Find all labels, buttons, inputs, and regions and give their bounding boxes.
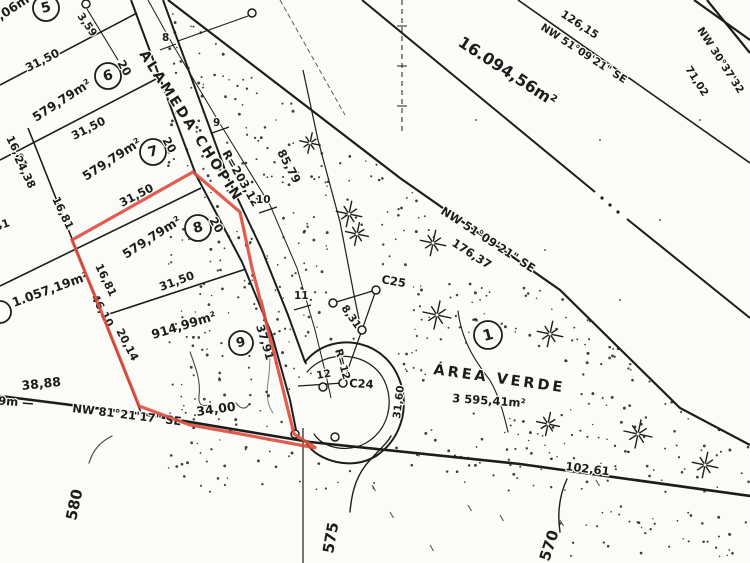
stipple-dot <box>596 525 598 527</box>
stipple-dot <box>620 421 623 424</box>
stipple-dot <box>209 180 211 182</box>
stipple-dot <box>602 397 604 399</box>
stipple-dot <box>186 461 189 464</box>
stipple-dot <box>269 450 271 452</box>
stipple-dot <box>508 459 510 461</box>
stipple-dot <box>476 446 478 448</box>
stipple-dot <box>413 286 414 287</box>
stipple-dot <box>246 88 248 90</box>
stipple-dot <box>680 411 682 413</box>
stipple-dot <box>235 423 237 425</box>
stipple-dot <box>455 315 457 317</box>
stipple-dot <box>326 231 329 234</box>
map-label-point-c24: C24 <box>349 376 374 391</box>
stipple-dot <box>664 491 666 493</box>
stipple-dot <box>246 134 248 136</box>
stipple-dot <box>209 330 211 332</box>
stipple-dot <box>628 404 631 407</box>
stipple-dot <box>365 160 366 161</box>
stipple-dot <box>238 113 241 116</box>
stipple-dot <box>717 516 720 519</box>
stipple-dot <box>549 452 551 454</box>
stipple-dot <box>716 486 718 488</box>
stipple-dot <box>654 523 656 525</box>
stipple-dot <box>216 205 219 208</box>
stipple-dot <box>564 443 565 444</box>
stipple-dot <box>170 123 173 126</box>
stipple-dot <box>561 298 564 301</box>
stipple-dot <box>275 119 277 121</box>
stipple-dot <box>204 197 206 199</box>
stipple-dot <box>641 527 643 529</box>
stipple-dot <box>587 352 590 355</box>
stipple-dot <box>176 47 178 49</box>
stipple-dot <box>219 439 220 440</box>
stipple-dot <box>168 467 170 469</box>
stipple-dot <box>389 255 391 257</box>
stipple-dot <box>510 424 512 426</box>
stipple-dot <box>525 294 527 296</box>
stipple-dot <box>661 479 663 481</box>
stipple-dot <box>192 344 195 347</box>
stipple-dot <box>316 488 318 490</box>
map-label-chainage-10: 10 <box>256 194 271 206</box>
stipple-dot <box>387 211 389 213</box>
stipple-dot <box>703 444 706 447</box>
stipple-dot <box>716 454 718 456</box>
stipple-dot <box>325 181 327 183</box>
stipple-dot <box>424 373 426 375</box>
stipple-dot <box>275 289 277 291</box>
stipple-dot <box>284 328 286 330</box>
stipple-dot <box>522 420 525 423</box>
stipple-dot <box>224 247 226 249</box>
stipple-dot <box>202 168 204 170</box>
stipple-dot <box>566 360 568 362</box>
stipple-dot <box>173 62 175 64</box>
stipple-dot <box>292 142 294 144</box>
stipple-dot <box>611 396 614 399</box>
stipple-dot <box>687 418 689 420</box>
stipple-dot <box>450 297 452 299</box>
stipple-dot <box>207 174 210 177</box>
stipple-dot <box>456 294 458 296</box>
stipple-dot <box>167 164 170 167</box>
stipple-dot <box>227 477 229 479</box>
stipple-dot <box>355 216 357 218</box>
stipple-dot <box>479 462 481 464</box>
stipple-dot <box>688 540 690 542</box>
stipple-dot <box>266 176 268 178</box>
stipple-dot <box>515 328 517 330</box>
scan-speck <box>619 299 621 301</box>
stipple-dot <box>664 403 666 405</box>
stipple-dot <box>172 384 174 386</box>
stipple-dot <box>325 291 327 293</box>
stipple-dot <box>257 459 260 462</box>
stipple-dot <box>353 338 355 340</box>
stipple-dot <box>536 298 538 300</box>
stipple-dot <box>400 207 403 210</box>
stipple-dot <box>446 470 448 472</box>
stipple-dot <box>228 312 230 314</box>
survey-line-gap-dot <box>608 203 611 206</box>
stipple-dot <box>638 521 641 524</box>
stipple-dot <box>370 175 372 177</box>
stipple-dot <box>603 541 605 543</box>
stipple-dot <box>219 259 221 261</box>
stipple-dot <box>276 318 279 321</box>
stipple-dot <box>243 286 246 289</box>
stipple-dot <box>406 370 408 372</box>
stipple-dot <box>681 471 684 474</box>
stipple-dot <box>186 336 188 338</box>
stipple-dot <box>310 299 312 301</box>
stipple-dot <box>551 458 553 460</box>
stipple-dot <box>288 455 290 457</box>
stipple-dot <box>289 328 291 330</box>
stipple-dot <box>630 369 632 371</box>
stipple-dot <box>420 289 423 292</box>
stipple-dot <box>248 355 250 357</box>
stipple-dot <box>715 547 717 549</box>
survey-point <box>248 9 256 17</box>
stipple-dot <box>678 456 680 458</box>
stipple-dot <box>560 414 562 416</box>
stipple-dot <box>221 288 224 291</box>
stipple-dot <box>528 334 531 337</box>
stipple-dot <box>197 82 200 85</box>
stipple-dot <box>529 431 532 434</box>
stipple-dot <box>479 299 481 301</box>
stipple-dot <box>523 287 526 290</box>
stipple-dot <box>313 216 315 218</box>
stipple-dot <box>512 473 515 476</box>
stipple-dot <box>420 285 421 286</box>
stipple-dot <box>540 468 542 470</box>
stipple-dot <box>284 257 286 259</box>
stipple-dot <box>417 293 420 296</box>
survey-map-page: 56789159,06m²31,50579,79m²31,50579,79m²3… <box>0 0 750 563</box>
stipple-dot <box>326 245 328 247</box>
stipple-dot <box>598 437 600 439</box>
stipple-dot <box>398 353 400 355</box>
stipple-dot <box>440 338 442 340</box>
stipple-dot <box>217 241 220 244</box>
stipple-dot <box>581 488 583 490</box>
stipple-dot <box>571 339 573 341</box>
stipple-dot <box>187 165 189 167</box>
stipple-dot <box>298 242 300 244</box>
stipple-dot <box>576 338 578 340</box>
stipple-dot <box>538 345 541 348</box>
stipple-dot <box>185 412 187 414</box>
stipple-dot <box>316 265 318 267</box>
stipple-dot <box>469 283 472 286</box>
map-label-dim-89m-partial: 89m — <box>0 393 34 410</box>
stipple-dot <box>411 352 413 354</box>
stipple-dot <box>624 450 627 453</box>
stipple-dot <box>629 363 631 365</box>
scan-speck <box>699 119 701 121</box>
stipple-dot <box>203 84 204 85</box>
stipple-dot <box>218 378 221 381</box>
stipple-dot <box>615 468 617 470</box>
stipple-dot <box>509 418 510 419</box>
stipple-dot <box>306 226 308 228</box>
stipple-dot <box>551 308 553 310</box>
stipple-dot <box>411 464 414 467</box>
stipple-dot <box>281 351 284 354</box>
stipple-dot <box>481 287 483 289</box>
stipple-dot <box>591 392 594 395</box>
stipple-dot <box>648 475 651 478</box>
stipple-dot <box>255 307 258 310</box>
stipple-dot <box>200 285 203 288</box>
stipple-dot <box>193 374 195 376</box>
survey-point <box>372 286 380 294</box>
stipple-dot <box>718 535 720 537</box>
stipple-dot <box>473 412 475 414</box>
stipple-dot <box>228 79 230 81</box>
stipple-dot <box>314 291 316 293</box>
stipple-dot <box>203 398 206 401</box>
stipple-dot <box>321 270 324 273</box>
stipple-dot <box>570 409 571 410</box>
stipple-dot <box>747 446 750 449</box>
stipple-dot <box>253 303 255 305</box>
stipple-dot <box>170 454 173 457</box>
stipple-dot <box>223 465 226 468</box>
stipple-dot <box>209 248 212 251</box>
stipple-dot <box>668 546 670 548</box>
stipple-dot <box>612 348 614 350</box>
stipple-dot <box>588 338 590 340</box>
map-label-chainage-8: 8 <box>162 32 169 44</box>
stipple-dot <box>181 384 183 386</box>
scan-speck <box>659 219 661 221</box>
scan-speck <box>599 139 601 141</box>
map-label-chainage-12: 12 <box>315 368 331 382</box>
stipple-dot <box>382 243 384 245</box>
stipple-dot <box>611 355 614 358</box>
stipple-dot <box>318 176 320 178</box>
stipple-dot <box>202 86 204 88</box>
stipple-dot <box>168 47 171 50</box>
stipple-dot <box>684 468 686 470</box>
stipple-dot <box>489 291 491 293</box>
stipple-dot <box>416 335 418 337</box>
stipple-dot <box>515 331 517 333</box>
stipple-dot <box>252 279 254 281</box>
survey-point <box>358 326 366 334</box>
stipple-dot <box>517 434 519 436</box>
stipple-dot <box>381 224 383 226</box>
stipple-dot <box>375 164 377 166</box>
stipple-dot <box>608 357 611 360</box>
stipple-dot <box>741 472 743 474</box>
stipple-dot <box>169 341 171 343</box>
stipple-dot <box>381 177 384 180</box>
stipple-dot <box>168 263 170 265</box>
stipple-dot <box>288 143 291 146</box>
stipple-dot <box>256 92 258 94</box>
stipple-dot <box>290 103 292 105</box>
stipple-dot <box>614 356 616 358</box>
scan-speck <box>544 249 546 251</box>
stipple-dot <box>303 314 304 315</box>
stipple-dot <box>198 52 200 54</box>
stipple-dot <box>572 542 574 544</box>
stipple-dot <box>579 430 581 432</box>
stipple-dot <box>267 255 269 257</box>
stipple-dot <box>263 173 265 175</box>
stipple-dot <box>404 263 407 266</box>
stipple-dot <box>652 518 653 519</box>
stipple-dot <box>215 43 217 45</box>
stipple-dot <box>629 521 631 523</box>
stipple-dot <box>291 452 294 455</box>
stipple-dot <box>298 376 300 378</box>
stipple-dot <box>281 103 283 105</box>
stipple-dot <box>321 165 323 167</box>
stipple-dot <box>414 329 415 330</box>
stipple-dot <box>556 456 558 458</box>
stipple-dot <box>719 556 720 557</box>
stipple-dot <box>171 119 174 122</box>
stipple-dot <box>288 341 289 342</box>
stipple-dot <box>245 446 248 449</box>
stipple-dot <box>201 349 203 351</box>
stipple-dot <box>182 239 184 241</box>
stipple-dot <box>588 403 590 405</box>
stipple-dot <box>303 262 305 264</box>
stipple-dot <box>607 545 610 548</box>
stipple-dot <box>294 272 296 274</box>
stipple-dot <box>316 326 317 327</box>
stipple-dot <box>237 296 239 298</box>
stipple-dot <box>582 373 584 375</box>
stipple-dot <box>273 161 276 164</box>
stipple-dot <box>602 512 604 514</box>
stipple-dot <box>307 331 310 334</box>
stipple-dot <box>197 336 200 339</box>
stipple-dot <box>211 295 212 296</box>
stipple-dot <box>183 475 186 478</box>
stipple-dot <box>305 335 307 337</box>
stipple-dot <box>236 231 237 232</box>
stipple-dot <box>255 158 257 160</box>
stipple-dot <box>224 484 226 486</box>
stipple-dot <box>210 448 212 450</box>
stipple-dot <box>170 236 172 238</box>
survey-point <box>329 299 337 307</box>
stipple-dot <box>701 522 704 525</box>
stipple-dot <box>620 505 623 508</box>
stipple-dot <box>244 280 246 282</box>
stipple-dot <box>395 238 397 240</box>
stipple-dot <box>288 183 291 186</box>
stipple-dot <box>731 552 734 555</box>
stipple-dot <box>190 366 193 369</box>
stipple-dot <box>250 238 252 240</box>
stipple-dot <box>631 379 634 382</box>
stipple-dot <box>448 283 451 286</box>
map-label-chainage-11: 11 <box>294 290 309 302</box>
stipple-dot <box>293 368 295 370</box>
survey-point <box>82 0 90 8</box>
stipple-dot <box>504 432 506 434</box>
scan-speck <box>475 119 477 121</box>
stipple-dot <box>413 367 415 369</box>
stipple-dot <box>587 319 589 321</box>
stipple-dot <box>702 541 705 544</box>
stipple-dot <box>291 275 293 277</box>
stipple-dot <box>200 452 202 454</box>
stipple-dot <box>219 269 222 272</box>
stipple-dot <box>257 140 259 142</box>
stipple-dot <box>405 353 408 356</box>
stipple-dot <box>565 317 567 319</box>
stipple-dot <box>504 325 507 328</box>
stipple-dot <box>249 394 251 396</box>
stipple-dot <box>448 327 450 329</box>
stipple-dot <box>644 532 646 534</box>
stipple-dot <box>424 432 427 435</box>
stipple-dot <box>403 230 405 232</box>
stipple-dot <box>175 72 177 74</box>
stipple-dot <box>223 394 226 397</box>
stipple-dot <box>236 85 238 87</box>
stipple-dot <box>181 409 183 411</box>
stipple-dot <box>501 323 503 325</box>
stipple-dot <box>312 239 315 242</box>
stipple-dot <box>552 426 555 429</box>
stipple-dot <box>405 368 407 370</box>
stipple-dot <box>415 200 418 203</box>
stipple-dot <box>209 261 211 263</box>
stipple-dot <box>646 465 649 468</box>
stipple-dot <box>310 175 313 178</box>
stipple-dot <box>248 367 250 369</box>
stipple-dot <box>421 319 423 321</box>
stipple-dot <box>623 407 626 410</box>
stipple-dot <box>701 449 703 451</box>
stipple-dot <box>506 448 509 451</box>
stipple-dot <box>213 74 216 77</box>
stipple-dot <box>584 344 586 346</box>
survey-point <box>319 383 327 391</box>
stipple-dot <box>745 521 747 523</box>
stipple-dot <box>285 364 288 367</box>
stipple-dot <box>586 481 589 484</box>
stipple-dot <box>208 303 211 306</box>
stipple-dot <box>614 465 616 467</box>
stipple-dot <box>415 230 418 233</box>
stipple-dot <box>600 363 602 365</box>
stipple-dot <box>527 292 530 295</box>
stipple-dot <box>564 489 566 491</box>
stipple-dot <box>218 372 221 375</box>
stipple-dot <box>508 489 510 491</box>
stipple-dot <box>199 293 201 295</box>
stipple-dot <box>210 192 211 193</box>
stipple-dot <box>217 477 220 480</box>
stipple-dot <box>682 538 683 539</box>
stipple-dot <box>428 229 430 231</box>
stipple-dot <box>627 367 629 369</box>
stipple-dot <box>292 110 295 113</box>
